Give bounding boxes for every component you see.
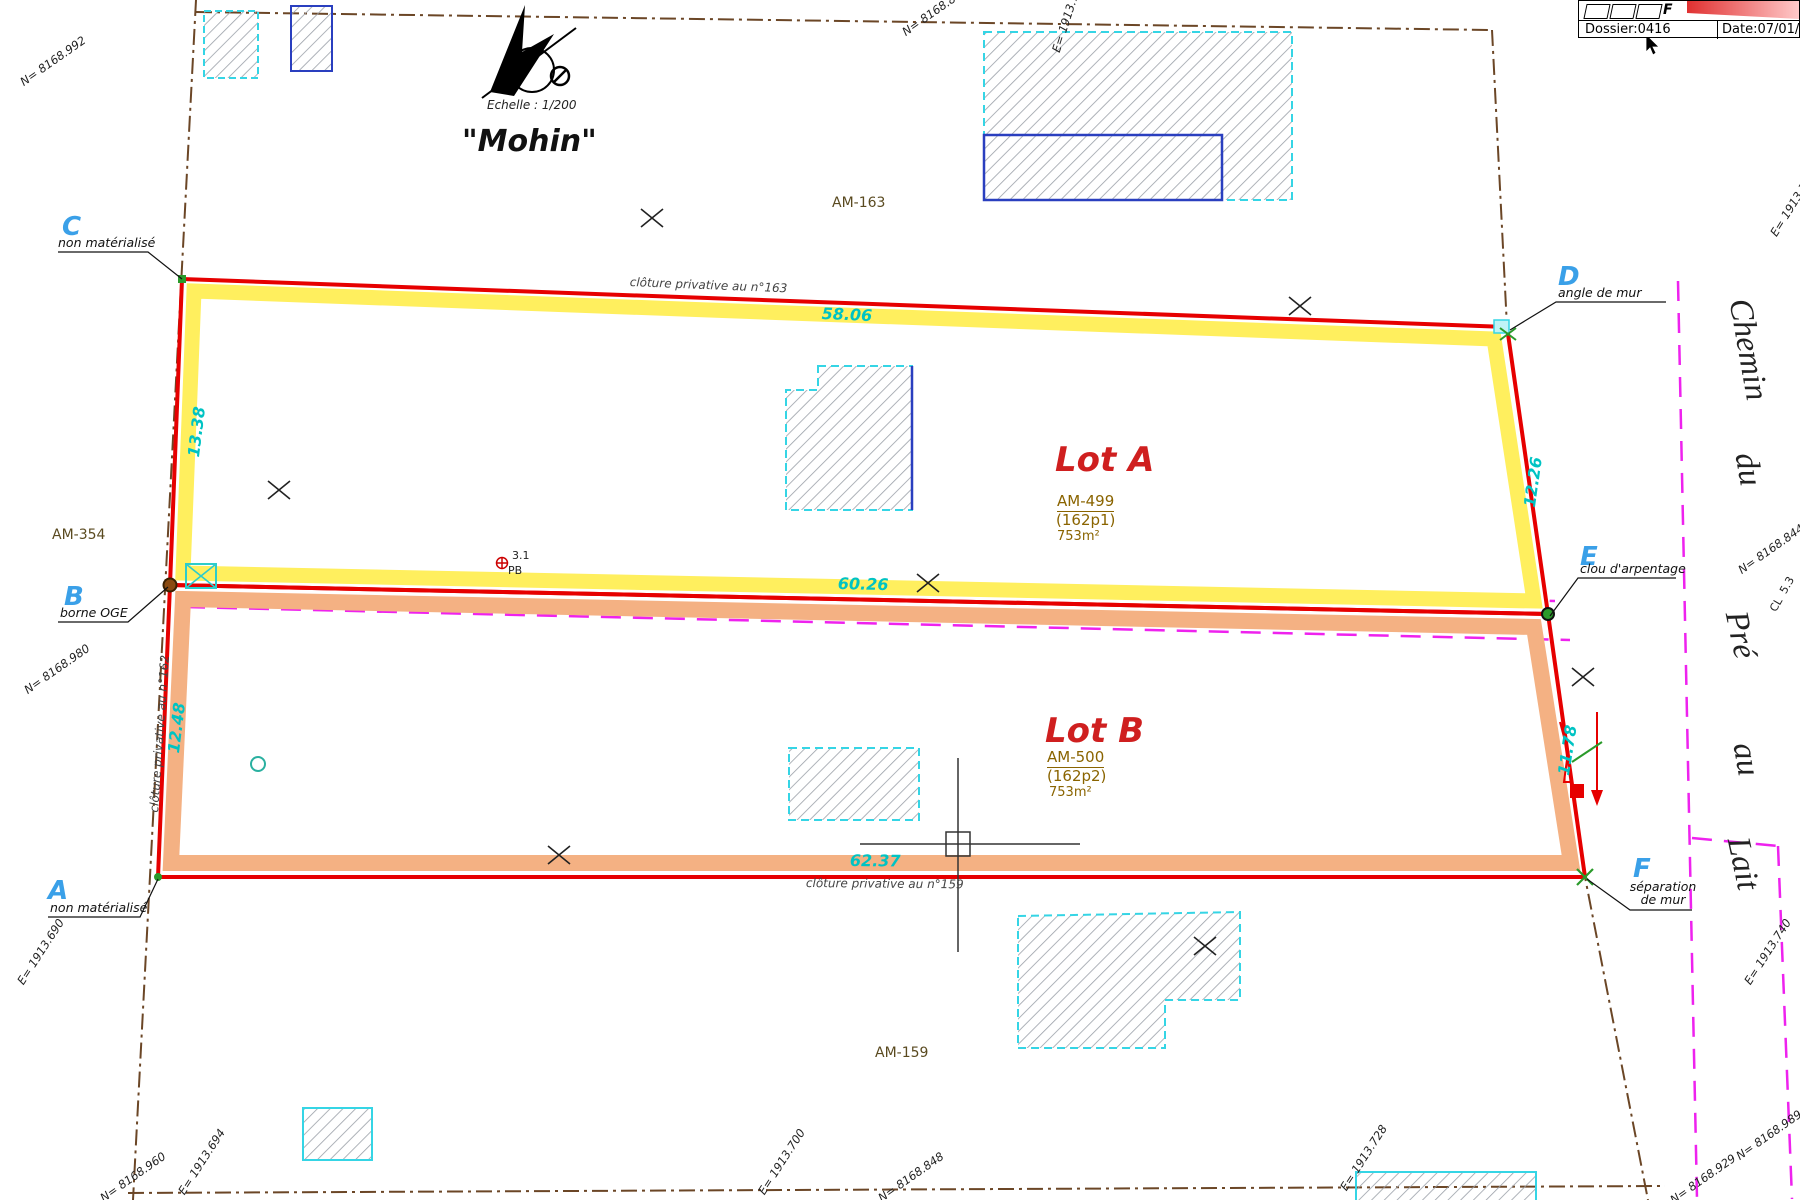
note-pb-value: 3.1 [512,550,530,562]
lot-b-parcel: AM-500 [1047,750,1104,768]
parcel-am163: AM-163 [832,196,885,211]
street-word-du: du [1728,450,1768,489]
lot-a-name: Lot A [1055,443,1154,479]
building-lot-a [786,366,912,510]
building-topleft-2 [291,6,332,71]
parcel-am354: AM-354 [52,528,105,543]
lot-b-area: 753m² [1049,786,1092,800]
point-f-desc: séparation de mur [1626,880,1700,906]
pb-symbol [496,557,508,569]
point-b-desc: borne OGE [60,606,128,619]
title-block: F Dossier:0416 Date:07/01/2 [1578,0,1800,38]
lot-b-highlight [171,599,1571,863]
building-top-large [984,32,1292,200]
street-word-au: au [1726,740,1766,779]
plan-drawing-layer [0,0,1800,1200]
point-c-desc: non matérialisé [58,236,155,249]
note-pb-label: PB [508,565,522,577]
lot-b-index: (162p2) [1047,769,1106,785]
dossier-field: Dossier:0416 [1585,22,1671,37]
fence-label-159: clôture privative au n°159 [806,877,964,891]
title-block-divider [1717,20,1718,39]
lot-a-index: (162p1) [1056,513,1115,529]
measure-bottom: 62.37 [850,853,901,870]
building-bottom [1018,912,1240,1048]
building-lot-b [789,748,919,820]
utility-circle-symbol [251,757,265,771]
lot-a-parcel: AM-499 [1057,494,1114,512]
parcel-am159: AM-159 [875,1046,928,1061]
lot-b-name: Lot B [1045,714,1144,750]
logo-swoosh [1579,1,1799,20]
lot-a-area: 753m² [1057,530,1100,544]
cadastral-plan-canvas[interactable]: Echelle : 1/200 "Mohin" Lot A AM-499 (16… [0,0,1800,1200]
building-bottomright-small [1356,1172,1536,1200]
building-topleft-1 [204,11,258,78]
north-arrow-icon [482,5,576,98]
point-e-desc: clou d'arpentage [1580,562,1686,575]
measure-top: 58.06 [821,306,872,325]
measure-middle: 60.26 [838,576,889,594]
point-a-desc: non matérialisé [50,901,147,914]
scale-label: Echelle : 1/200 [487,99,576,112]
point-d-desc: angle de mur [1558,286,1642,299]
place-name: "Mohin" [462,126,597,158]
date-field: Date:07/01/2 [1722,22,1800,37]
building-bottomleft-small [303,1108,372,1160]
